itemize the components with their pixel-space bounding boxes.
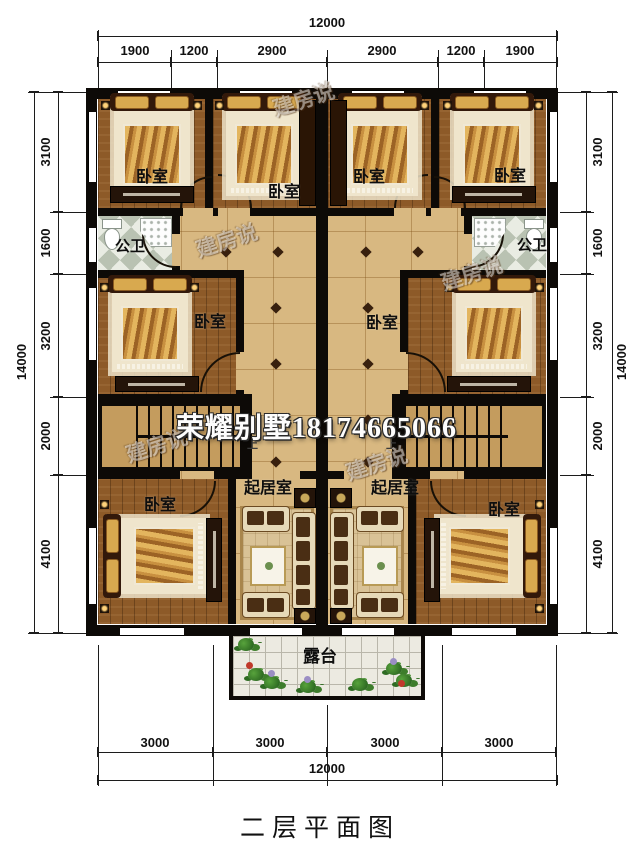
dim-line — [586, 92, 587, 633]
bed-fringe — [347, 188, 413, 193]
flower — [398, 680, 405, 687]
lamp — [443, 101, 452, 110]
window — [88, 528, 97, 604]
bed-headboard — [450, 93, 534, 111]
pillow — [106, 519, 119, 553]
bed-fringe — [461, 364, 527, 369]
dim-top-seg: 1900 — [495, 44, 545, 58]
pillow — [455, 96, 489, 109]
watermark-brand-phone: 荣耀别墅18174665066 — [176, 406, 457, 446]
dim-bottom-seg: 3000 — [474, 736, 524, 750]
lamp — [215, 101, 224, 110]
sofa — [330, 512, 354, 610]
bed-blanket — [449, 527, 510, 585]
wall — [464, 216, 472, 234]
dim-ext — [560, 475, 594, 476]
dim-left-seg: 3200 — [39, 314, 53, 358]
dim-ext — [556, 645, 557, 786]
dim-ext — [98, 30, 99, 88]
wall — [426, 208, 431, 216]
sofa-cushion — [247, 511, 264, 525]
lamp — [101, 101, 110, 110]
drawing-title: 二层平面图 — [0, 808, 640, 844]
dim-ext — [556, 30, 557, 88]
dim-tick — [212, 747, 214, 757]
dim-right-seg: 3100 — [591, 130, 605, 174]
wall — [98, 208, 183, 216]
plant — [352, 678, 368, 691]
room-label-bedroom: 卧室 — [480, 168, 540, 186]
bed-headboard — [103, 514, 121, 598]
room-label-living: 起居室 — [355, 480, 435, 498]
flower — [246, 662, 253, 669]
lamp — [190, 283, 199, 292]
bed — [112, 282, 188, 372]
dim-right-total: 14000 — [615, 332, 629, 392]
wall — [464, 471, 546, 479]
bed-fringe — [198, 523, 203, 589]
plant — [248, 668, 264, 681]
dim-top-seg: 2900 — [357, 44, 407, 58]
bed-headboard — [108, 275, 192, 293]
room-label-bedroom: 卧室 — [339, 169, 399, 187]
room-label-bedroom: 卧室 — [122, 169, 182, 187]
bed — [438, 518, 534, 594]
stair-landing — [508, 406, 542, 467]
lamp — [535, 500, 544, 509]
wall — [172, 216, 180, 234]
dim-tick — [326, 747, 328, 757]
wall — [213, 208, 218, 216]
sofa-cushion — [334, 517, 348, 537]
bed-headboard — [338, 93, 422, 111]
dim-ext — [484, 50, 485, 88]
room-label-living: 起居室 — [228, 480, 308, 498]
dim-bottom-seg: 3000 — [360, 736, 410, 750]
dim-ext — [560, 274, 594, 275]
lamp — [100, 604, 109, 613]
side-table — [330, 608, 352, 624]
window — [120, 627, 184, 636]
side-table — [294, 608, 316, 624]
wall — [98, 471, 180, 479]
dim-bottom-total: 12000 — [297, 762, 357, 776]
dim-ext — [50, 397, 86, 398]
room-label-bedroom: 卧室 — [254, 184, 314, 202]
pillow — [227, 96, 261, 109]
dim-left-total: 14000 — [15, 332, 29, 392]
dim-right-seg: 2000 — [591, 414, 605, 458]
dim-top-seg: 1200 — [436, 44, 486, 58]
sofa — [242, 506, 290, 532]
wall — [228, 479, 236, 624]
dim-ext — [560, 397, 594, 398]
lamp — [534, 101, 543, 110]
wardrobe — [330, 100, 347, 206]
dim-ext — [50, 212, 86, 213]
bed — [110, 518, 206, 594]
plant — [264, 676, 280, 689]
dim-tick — [441, 747, 443, 757]
lamp — [100, 500, 109, 509]
sofa-cushion — [296, 517, 310, 537]
dim-top-seg: 2900 — [247, 44, 297, 58]
bed-fringe — [441, 523, 446, 589]
sofa-cushion — [334, 541, 348, 561]
sofa-cushion — [267, 511, 284, 525]
sofa-cushion — [296, 589, 310, 605]
dim-line — [98, 36, 557, 37]
sofa — [356, 592, 404, 618]
dim-ext — [98, 645, 99, 786]
bed-blanket — [134, 527, 195, 585]
pillow — [525, 519, 538, 553]
bed-headboard — [110, 93, 194, 111]
room-label-bedroom: 卧室 — [474, 502, 534, 520]
bed — [456, 282, 532, 372]
wall — [98, 394, 252, 402]
wall — [461, 208, 546, 216]
pillow — [113, 278, 147, 291]
dim-tick — [97, 775, 99, 785]
pillow — [153, 278, 187, 291]
pillow — [495, 96, 529, 109]
dim-ext — [558, 633, 618, 634]
tv-bench — [452, 186, 536, 203]
dim-ext — [28, 92, 86, 93]
dim-ext — [217, 50, 218, 88]
lamp — [100, 283, 109, 292]
side-table — [330, 488, 352, 508]
sofa — [356, 506, 404, 532]
tv-bench — [447, 376, 531, 392]
dim-tick — [556, 775, 558, 785]
plant — [238, 638, 254, 651]
tv-bench — [110, 186, 194, 203]
dim-line — [58, 92, 59, 633]
sofa-cushion — [296, 565, 310, 585]
dim-ext — [558, 92, 618, 93]
window — [88, 112, 97, 182]
bed-blanket — [465, 306, 523, 361]
pillow — [497, 278, 531, 291]
sofa-cushion — [381, 511, 398, 525]
dim-line — [98, 780, 557, 781]
dim-left-seg: 1600 — [39, 221, 53, 265]
wall — [300, 471, 316, 479]
flower — [390, 658, 397, 665]
window — [88, 228, 97, 262]
dim-ext — [442, 645, 443, 786]
sofa — [242, 592, 290, 618]
sofa-cushion — [361, 511, 378, 525]
bed-blanket — [235, 124, 293, 185]
dim-line — [34, 92, 35, 633]
lamp — [535, 604, 544, 613]
pillow — [383, 96, 417, 109]
pillow — [155, 96, 189, 109]
dim-ext — [560, 212, 594, 213]
window — [88, 288, 97, 360]
window — [452, 627, 516, 636]
dim-ext — [171, 50, 172, 88]
pillow — [106, 559, 119, 593]
room-label-terrace: 露台 — [287, 648, 353, 666]
wall — [408, 479, 416, 624]
room-label-bathroom: 公卫 — [100, 238, 160, 256]
room-label-bathroom: 公卫 — [502, 237, 562, 255]
coffee-table — [250, 546, 286, 586]
window — [549, 112, 558, 182]
room-label-bedroom: 卧室 — [352, 315, 412, 333]
tv-bench — [424, 518, 440, 602]
terrace-door — [250, 627, 302, 636]
room-label-bedroom: 卧室 — [180, 314, 240, 332]
dim-ext — [50, 274, 86, 275]
coffee-table — [362, 546, 398, 586]
dim-ext — [50, 475, 86, 476]
pillow — [525, 559, 538, 593]
room-label-bedroom: 卧室 — [130, 497, 190, 515]
bed-headboard — [523, 514, 541, 598]
pillow — [343, 96, 377, 109]
dim-top-total: 12000 — [297, 16, 357, 30]
dim-left-seg: 4100 — [39, 532, 53, 576]
wall — [392, 471, 430, 479]
wall — [328, 208, 394, 216]
dim-top-seg: 1200 — [169, 44, 219, 58]
lamp — [420, 101, 429, 110]
sofa-cushion — [381, 598, 398, 612]
dim-left-seg: 3100 — [39, 130, 53, 174]
window — [549, 528, 558, 604]
dim-left-seg: 2000 — [39, 414, 53, 458]
pillow — [115, 96, 149, 109]
wall — [250, 208, 316, 216]
tv-bench — [206, 518, 222, 602]
sofa-cushion — [267, 598, 284, 612]
dim-ext — [213, 645, 214, 786]
dim-right-seg: 1600 — [591, 221, 605, 265]
lamp — [535, 283, 544, 292]
dim-ext — [28, 633, 86, 634]
flower — [268, 670, 275, 677]
sofa-cushion — [361, 598, 378, 612]
bed-fringe — [117, 364, 183, 369]
bed-blanket — [121, 306, 179, 361]
dim-bottom-seg: 3000 — [245, 736, 295, 750]
dim-ext — [438, 50, 439, 88]
terrace-door — [342, 627, 394, 636]
party-wall — [316, 88, 328, 636]
dim-tick — [97, 747, 99, 757]
wall — [392, 394, 546, 402]
dim-right-seg: 4100 — [591, 532, 605, 576]
dim-bottom-seg: 3000 — [130, 736, 180, 750]
wall — [328, 471, 344, 479]
wall — [214, 471, 252, 479]
dim-tick — [555, 747, 557, 757]
flower — [304, 676, 311, 683]
dim-right-seg: 3200 — [591, 314, 605, 358]
sofa-cushion — [334, 565, 348, 585]
tv-bench — [115, 376, 199, 392]
window — [549, 288, 558, 360]
sofa-cushion — [296, 541, 310, 561]
sofa-cushion — [334, 589, 348, 605]
lamp — [193, 101, 202, 110]
sofa-cushion — [247, 598, 264, 612]
floor-plan-canvas: 12000 1900 1200 2900 2900 1200 1900 1400… — [0, 0, 640, 857]
dim-top-seg: 1900 — [110, 44, 160, 58]
sofa — [292, 512, 316, 610]
dim-line — [612, 92, 613, 633]
